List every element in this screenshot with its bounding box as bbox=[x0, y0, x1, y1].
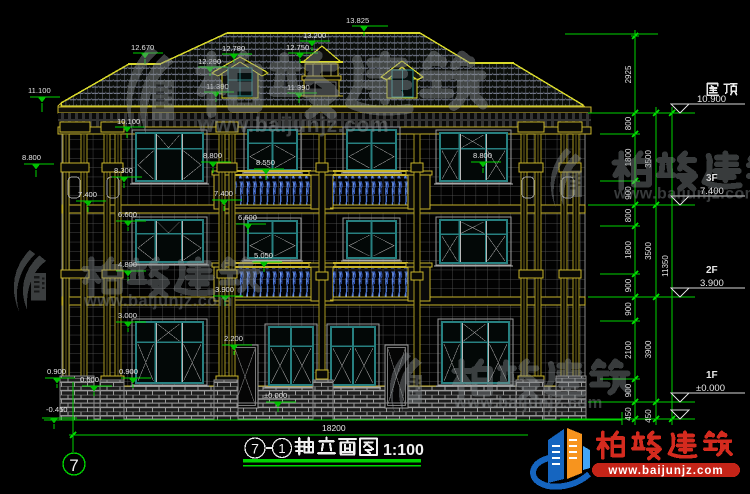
svg-text:www.baijunjz.com: www.baijunjz.com bbox=[607, 465, 723, 477]
svg-text:11350: 11350 bbox=[661, 255, 670, 277]
svg-text:2100: 2100 bbox=[624, 341, 633, 359]
svg-text:-0.450: -0.450 bbox=[46, 405, 68, 414]
svg-text:8.800: 8.800 bbox=[203, 151, 222, 160]
svg-text:800: 800 bbox=[624, 116, 633, 130]
svg-text:2F: 2F bbox=[706, 265, 718, 276]
svg-text:7: 7 bbox=[69, 456, 78, 475]
svg-text:7.400: 7.400 bbox=[78, 190, 97, 199]
svg-text:13.200: 13.200 bbox=[303, 31, 326, 40]
svg-text:2.200: 2.200 bbox=[224, 334, 243, 343]
svg-text:±0.000: ±0.000 bbox=[264, 391, 287, 400]
svg-text:6.600: 6.600 bbox=[238, 213, 257, 222]
svg-text:3.900: 3.900 bbox=[700, 278, 724, 289]
svg-text:1800: 1800 bbox=[624, 241, 633, 259]
svg-text:900: 900 bbox=[624, 278, 633, 292]
svg-text:8.800: 8.800 bbox=[22, 153, 41, 162]
svg-text:13.825: 13.825 bbox=[346, 16, 369, 25]
svg-text:6.600: 6.600 bbox=[118, 210, 137, 219]
svg-text:0.900: 0.900 bbox=[119, 367, 138, 376]
svg-text:11.100: 11.100 bbox=[28, 86, 51, 95]
svg-text:www.baijunjz.com: www.baijunjz.com bbox=[453, 394, 603, 412]
svg-text:2925: 2925 bbox=[624, 65, 633, 83]
svg-text:www.baijunjz.com: www.baijunjz.com bbox=[83, 292, 233, 310]
svg-text:10.900: 10.900 bbox=[697, 94, 726, 105]
svg-text:800: 800 bbox=[624, 208, 633, 222]
svg-text:7: 7 bbox=[251, 441, 259, 457]
svg-text:1F: 1F bbox=[706, 370, 718, 381]
svg-text:18200: 18200 bbox=[322, 423, 346, 433]
svg-text:7.400: 7.400 bbox=[214, 189, 233, 198]
svg-text:3900: 3900 bbox=[644, 340, 653, 358]
svg-text:8.300: 8.300 bbox=[114, 166, 133, 175]
svg-text:450: 450 bbox=[624, 407, 633, 421]
svg-text:12.750: 12.750 bbox=[286, 43, 309, 52]
svg-text:5.050: 5.050 bbox=[254, 251, 273, 260]
svg-text:8.800: 8.800 bbox=[473, 151, 492, 160]
svg-text:0.900: 0.900 bbox=[47, 367, 66, 376]
svg-text:8.550: 8.550 bbox=[256, 158, 275, 167]
svg-text:3500: 3500 bbox=[644, 242, 653, 260]
svg-text:3.000: 3.000 bbox=[118, 311, 137, 320]
svg-text:0.600: 0.600 bbox=[80, 375, 99, 384]
svg-text:www.baijunjz.com: www.baijunjz.com bbox=[613, 186, 750, 203]
svg-text:450: 450 bbox=[644, 409, 653, 423]
svg-text:±0.000: ±0.000 bbox=[696, 383, 725, 394]
svg-text:www.baijunjz.com: www.baijunjz.com bbox=[197, 114, 389, 137]
svg-text:900: 900 bbox=[624, 302, 633, 316]
svg-text:1:100: 1:100 bbox=[383, 442, 424, 459]
svg-text:1: 1 bbox=[278, 441, 285, 456]
